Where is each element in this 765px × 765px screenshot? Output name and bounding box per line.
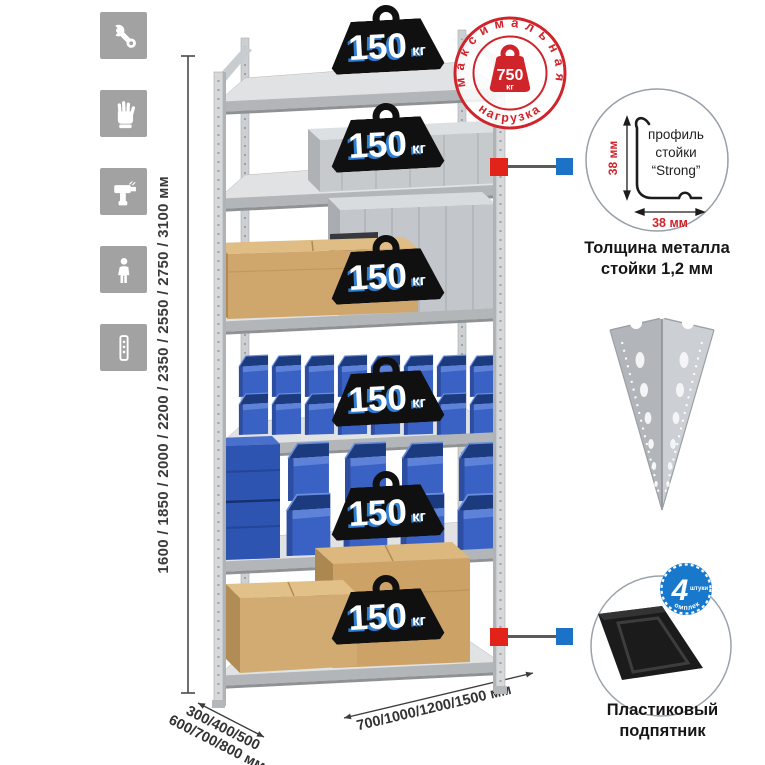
svg-text:штуки: штуки <box>690 586 708 592</box>
blue-marker <box>556 628 573 645</box>
load-value: 150 <box>348 597 408 635</box>
svg-text:стойки: стойки <box>655 145 696 160</box>
blue-marker <box>556 158 573 175</box>
weight-badge: 150кг <box>326 369 449 427</box>
blue-crates <box>217 436 280 560</box>
weight-badge: 150кг <box>326 115 449 173</box>
load-value: 150 <box>348 125 408 163</box>
max-load-stamp: максимальная нагрузка 750 кг <box>450 13 570 133</box>
foot-caption: Пластиковый подпятник <box>585 700 740 743</box>
load-value: 150 <box>348 379 408 417</box>
weight-badge: 150кг <box>326 483 449 541</box>
red-marker <box>490 628 508 646</box>
product-infographic: 1600 / 1850 / 2000 / 2200 / 2350 / 2550 … <box>0 0 765 765</box>
load-unit: кг <box>412 393 427 411</box>
connector-line <box>505 165 560 168</box>
profile-dim-horizontal: 38 мм <box>652 216 688 230</box>
weight-badge: 150кг <box>326 247 449 305</box>
load-unit: кг <box>412 271 427 289</box>
load-value: 150 <box>348 257 408 295</box>
load-unit: кг <box>412 507 427 525</box>
profile-caption: Толщина металла стойки 1,2 мм <box>578 238 736 281</box>
load-value: 150 <box>348 27 408 65</box>
connector-line <box>505 635 560 638</box>
corner-post-image <box>592 298 728 526</box>
svg-text:4: 4 <box>671 574 689 607</box>
profile-dim-vertical: 38 мм <box>606 141 620 176</box>
svg-text:кг: кг <box>506 82 514 92</box>
load-unit: кг <box>412 611 427 629</box>
svg-text:профиль: профиль <box>648 127 704 142</box>
load-unit: кг <box>412 139 427 157</box>
person-icon <box>100 246 147 293</box>
rack-post-icon <box>100 324 147 371</box>
svg-text:“Strong”: “Strong” <box>652 163 701 178</box>
load-value: 150 <box>348 493 408 531</box>
red-marker <box>490 158 508 176</box>
height-dimension-label: 1600 / 1850 / 2000 / 2200 / 2350 / 2550 … <box>150 55 176 695</box>
work-gloves-icon <box>100 90 147 137</box>
load-unit: кг <box>412 41 427 59</box>
power-drill-icon <box>100 168 147 215</box>
wrench-icon <box>100 12 147 59</box>
weight-badge: 150кг <box>326 17 449 75</box>
quantity-badge: 4 штуки в комплекте <box>658 561 714 617</box>
weight-badge: 150кг <box>326 587 449 645</box>
post-profile-detail: 38 мм 38 мм профиль стойки “Strong” <box>583 86 731 234</box>
